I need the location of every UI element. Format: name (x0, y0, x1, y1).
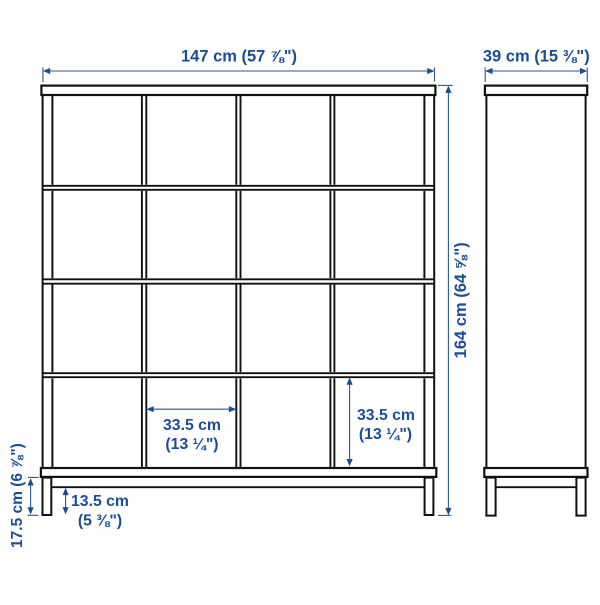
svg-text:17.5 cm (6 ⅞"): 17.5 cm (6 ⅞") (9, 443, 26, 548)
svg-text:33.5 cm: 33.5 cm (357, 407, 415, 424)
svg-text:147 cm (57 ⅞"): 147 cm (57 ⅞") (181, 48, 297, 66)
svg-text:39 cm (15 ⅜"): 39 cm (15 ⅜") (483, 48, 590, 66)
svg-text:13.5 cm: 13.5 cm (71, 493, 129, 510)
svg-text:(13 ¼"): (13 ¼") (165, 436, 218, 453)
svg-text:33.5 cm: 33.5 cm (163, 417, 221, 434)
svg-text:(5 ⅜"): (5 ⅜") (78, 513, 122, 530)
svg-text:(13 ¼"): (13 ¼") (359, 426, 412, 443)
svg-text:164 cm (64 ⅝"): 164 cm (64 ⅝") (452, 242, 470, 358)
